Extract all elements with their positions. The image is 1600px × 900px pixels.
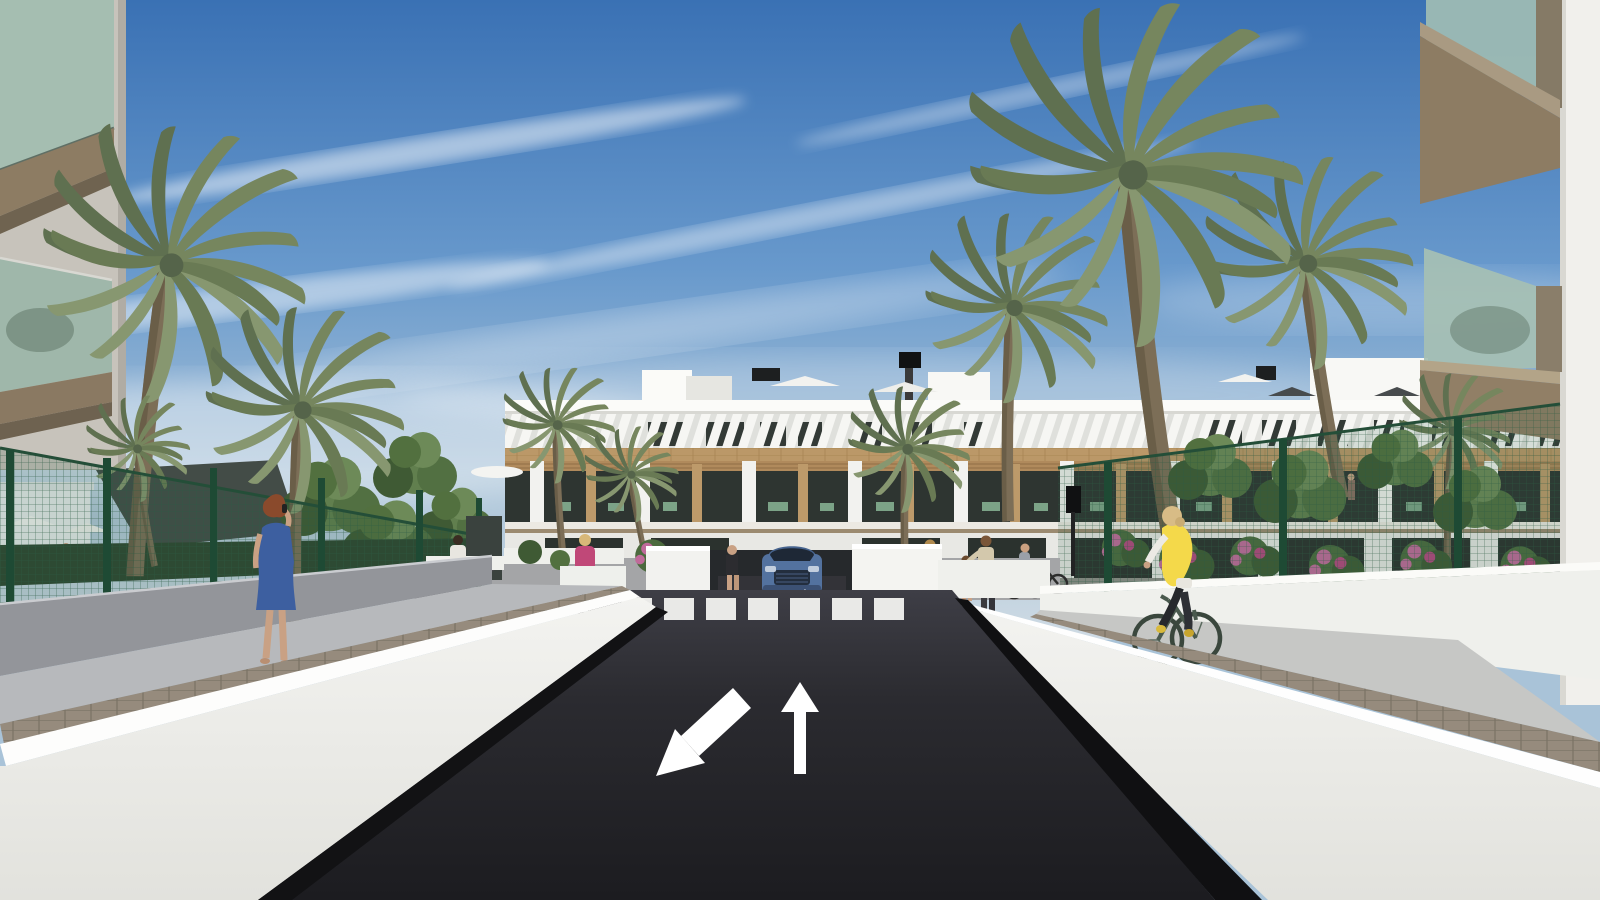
- headlight: [808, 566, 819, 572]
- headlight: [765, 566, 776, 572]
- terrace-umbrella: [471, 466, 523, 478]
- architectural-render: [0, 0, 1600, 900]
- render-canvas: [0, 0, 1600, 900]
- phone: [282, 504, 287, 513]
- street-lamp: [1066, 486, 1081, 513]
- crosswalk: [622, 598, 904, 620]
